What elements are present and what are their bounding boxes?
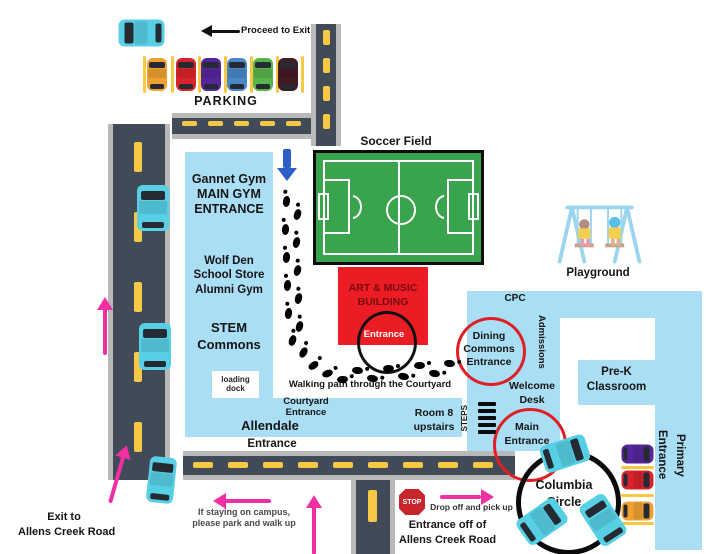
campus-map: loading dock Soccer Field ART & MUSIC BU…	[0, 0, 710, 554]
car-window	[602, 527, 623, 544]
lane-dash	[621, 522, 654, 525]
parking-label: PARKING	[181, 95, 271, 108]
footprint-icon	[298, 346, 310, 359]
footprint-icon	[383, 365, 394, 372]
car-icon	[176, 58, 196, 91]
prek-label-2: Classroom	[580, 381, 653, 393]
footprint-icon	[282, 224, 290, 235]
lane-dash	[263, 462, 283, 468]
car-window	[623, 447, 627, 460]
lane-dash	[228, 462, 248, 468]
footprint-icon	[293, 264, 303, 277]
car-window	[149, 493, 168, 501]
lane-dash	[323, 114, 330, 129]
stem-label: STEM	[187, 321, 271, 335]
car-window	[203, 62, 218, 68]
lane-dash	[621, 494, 654, 497]
car-window	[202, 69, 219, 78]
car-window	[155, 24, 161, 43]
car-window	[519, 521, 536, 542]
exit-to-label: Exit to	[18, 512, 110, 524]
courtyard-entrance-label-2: Entrance	[276, 408, 336, 418]
footprint-icon	[428, 369, 440, 378]
car-window	[623, 504, 627, 517]
footprint-icon	[292, 236, 301, 248]
car-window	[280, 62, 295, 68]
car-window	[633, 472, 642, 488]
car-window	[177, 69, 194, 78]
main-gym-label: MAIN GYM	[187, 188, 271, 201]
car-window	[643, 504, 649, 518]
proceed-to-exit-label: Proceed to Exit	[241, 26, 310, 36]
steps-icon	[478, 409, 496, 413]
loading-dock-label: loading dock	[217, 376, 255, 394]
exit-to-label-2: Allens Creek Road	[18, 527, 110, 539]
footprint-icon	[287, 334, 297, 347]
allendale-entrance-label: Entrance	[227, 438, 317, 450]
car-window	[633, 446, 642, 462]
car-icon	[137, 185, 169, 231]
stay-on-campus-label-2: please park and walk up	[190, 519, 298, 528]
car-window	[139, 201, 167, 214]
footprint-icon	[414, 362, 425, 369]
lane-dash	[286, 121, 301, 126]
dining-commons-circle	[456, 317, 526, 386]
footprint-icon	[294, 292, 303, 304]
lane-dash	[298, 462, 318, 468]
car-window	[149, 62, 164, 68]
footprint-icon	[284, 308, 292, 320]
car-window	[141, 191, 165, 199]
lane-dash	[208, 121, 223, 126]
room8-label-2: upstairs	[408, 422, 460, 433]
car-icon	[147, 58, 167, 91]
lane-dash	[368, 490, 377, 522]
lane-dash	[621, 466, 654, 469]
car-window	[124, 23, 132, 44]
lane-dash	[473, 462, 493, 468]
welcome-desk-label-2: Desk	[501, 395, 563, 406]
soccer-field-label: Soccer Field	[330, 135, 462, 148]
car-icon	[227, 58, 247, 91]
cpc-label: CPC	[495, 294, 535, 305]
gym-entrance-label: ENTRANCE	[187, 203, 271, 216]
columbia-circle-label: Columbia	[527, 479, 601, 492]
footprint-icon	[292, 208, 302, 221]
car-window	[279, 69, 296, 78]
steps-icon	[478, 402, 496, 406]
steps-label: STEPS	[461, 403, 469, 433]
car-window	[230, 84, 244, 88]
footprint-icon	[307, 359, 320, 371]
car-icon	[621, 502, 653, 521]
car-window	[643, 447, 649, 461]
car-icon	[201, 58, 221, 91]
footprint-icon	[283, 280, 291, 292]
admissions-label: Admissions	[536, 308, 546, 376]
lane-dash	[438, 462, 458, 468]
stay-on-campus-label: If staying on campus,	[190, 508, 298, 517]
soccer-field	[313, 150, 484, 265]
lane-dash	[323, 30, 330, 45]
car-window	[633, 503, 642, 519]
field-center-circle	[386, 195, 416, 225]
lane-dash	[182, 121, 197, 126]
art-building-name: ART & MUSIC	[338, 283, 428, 294]
car-icon	[278, 58, 298, 91]
lane-dash	[134, 282, 142, 312]
lane-dash	[134, 422, 142, 452]
car-icon	[139, 323, 171, 370]
playground-swing-icon	[552, 200, 647, 268]
lane-dash	[368, 462, 388, 468]
lane-dash	[260, 121, 275, 126]
gannet-gym-label: Gannet Gym	[187, 173, 271, 186]
car-window	[143, 329, 167, 337]
car-icon	[145, 456, 177, 505]
car-window	[256, 84, 270, 88]
courtyard-entrance-label: Courtyard	[276, 397, 336, 407]
lane-dash	[323, 58, 330, 73]
walk-up-arrow	[305, 495, 323, 554]
car-window	[179, 84, 193, 88]
art-building-name-2: BUILDING	[338, 297, 428, 308]
car-window	[255, 62, 270, 68]
allendale-label: Allendale	[225, 419, 315, 433]
car-window	[178, 62, 193, 68]
stem-commons-label: Commons	[187, 338, 271, 352]
footprint-icon	[444, 360, 456, 368]
primary-entrance-label-2: Primary	[674, 400, 686, 510]
car-window	[254, 69, 271, 78]
lane-dash	[193, 462, 213, 468]
car-window	[150, 84, 164, 88]
field-left-goal	[318, 193, 329, 220]
parking-exit-road	[172, 113, 318, 139]
courtyard-down-arrow	[277, 149, 297, 181]
car-window	[229, 62, 244, 68]
stop-sign: STOP	[398, 488, 426, 516]
car-window	[228, 69, 245, 78]
steps-icon	[478, 430, 496, 434]
car-window	[142, 222, 164, 228]
room8-label: Room 8	[408, 408, 460, 419]
drop-off-label: Drop off and pick up	[424, 503, 519, 512]
steps-icon	[478, 416, 496, 420]
car-window	[141, 339, 169, 352]
car-window	[144, 361, 166, 367]
lane-dash	[171, 56, 174, 93]
lane-dash	[143, 56, 146, 93]
footprint-icon	[282, 252, 290, 264]
primary-entrance-label: Entrance	[656, 400, 668, 510]
footprint-icon	[282, 196, 290, 208]
lane-dash	[301, 56, 304, 93]
steps-icon	[478, 423, 496, 427]
lane-dash	[403, 462, 423, 468]
footprint-icon	[321, 368, 334, 378]
lane-dash	[234, 121, 249, 126]
car-window	[643, 473, 649, 487]
car-window	[148, 69, 165, 78]
car-window	[623, 473, 627, 486]
proceed-to-exit-arrow	[201, 25, 241, 38]
car-icon	[253, 58, 273, 91]
playground-label: Playground	[550, 267, 646, 279]
car-window	[281, 84, 295, 88]
car-icon	[621, 471, 653, 490]
school-store-label: School Store	[187, 269, 271, 281]
car-icon	[118, 20, 164, 47]
stop-sign-label: STOP	[403, 499, 422, 506]
car-window	[134, 21, 147, 44]
car-window	[149, 472, 173, 487]
field-right-goal	[468, 193, 479, 220]
footprint-icon	[295, 320, 305, 333]
welcome-desk-label: Welcome	[501, 381, 563, 392]
alumni-gym-label: Alumni Gym	[187, 284, 271, 296]
lane-dash	[323, 86, 330, 101]
car-window	[152, 462, 173, 472]
footprint-icon	[352, 367, 364, 375]
car-window	[204, 84, 218, 88]
wolf-den-label: Wolf Den	[187, 255, 271, 267]
lane-dash	[333, 462, 353, 468]
car-icon	[621, 445, 653, 464]
lane-dash	[134, 142, 142, 172]
left-road-up-arrow	[96, 297, 114, 357]
loading-dock: loading dock	[212, 371, 259, 398]
entrance-off-label: Entrance off of	[395, 520, 500, 532]
prek-label: Pre-K	[580, 366, 653, 378]
entrance-off-label-2: Allens Creek Road	[395, 535, 500, 547]
car-window	[542, 448, 554, 469]
